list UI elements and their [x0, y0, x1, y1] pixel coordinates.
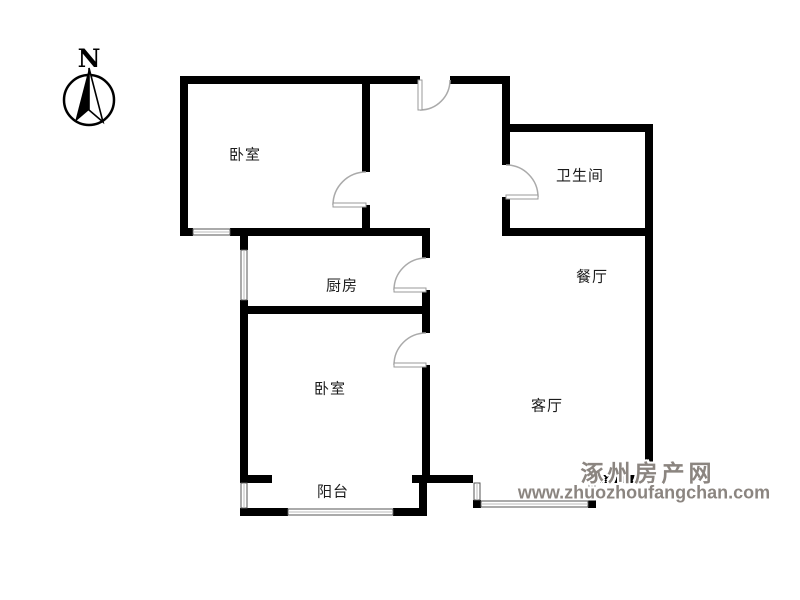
floor-plan-page: N [0, 0, 800, 600]
room-label-bedroom-top: 卧室 [229, 144, 261, 165]
window-balcony-left [241, 483, 247, 508]
door-leaf [506, 195, 538, 199]
door-arc [394, 333, 426, 365]
wall-segment [240, 314, 248, 475]
wall-segment [502, 124, 653, 132]
room-label-bathroom: 卫生间 [556, 165, 604, 186]
wall-segment [240, 475, 272, 483]
wall-segment [180, 228, 193, 236]
window-living-jog-left [474, 483, 480, 500]
door-leaf [394, 288, 426, 292]
door-leaf [394, 363, 426, 367]
wall-segment [422, 228, 430, 258]
wall-segment [412, 475, 473, 483]
wall-segment [180, 76, 188, 236]
wall-segment [240, 306, 430, 314]
wall-segment [230, 228, 430, 236]
door-arc [394, 258, 426, 290]
door-bathroom [506, 165, 538, 199]
wall-segment [502, 228, 653, 236]
wall-segment [362, 76, 370, 172]
room-label-kitchen: 厨房 [326, 275, 358, 296]
window-kitchen-left [241, 250, 247, 300]
watermark-site-url: www.zhuozhoufangchan.com [518, 483, 770, 504]
door-arc [420, 80, 450, 110]
room-label-dining: 餐厅 [576, 266, 608, 287]
room-label-bedroom-bottom: 卧室 [314, 378, 346, 399]
door-leaf [418, 80, 422, 110]
door-kitchen [394, 258, 426, 292]
wall-segment [240, 236, 248, 250]
door-entry [418, 80, 450, 110]
wall-segment [422, 290, 430, 333]
walls-layer [180, 76, 653, 516]
door-bedroom-top [333, 172, 366, 207]
wall-segment [422, 365, 430, 475]
wall-segment [240, 508, 288, 516]
wall-segment [473, 500, 481, 508]
window-bedroom-top [193, 229, 230, 235]
wall-segment [645, 124, 653, 483]
door-arc [506, 165, 538, 197]
wall-segment [180, 76, 420, 84]
wall-segment [450, 76, 507, 84]
wall-segment [502, 76, 510, 165]
room-label-balcony: 阳台 [317, 481, 349, 502]
window-balcony-bottom [288, 509, 393, 515]
wall-segment [393, 508, 427, 516]
door-bedroom-bottom [394, 333, 426, 367]
door-arc [333, 172, 366, 205]
compass: N [64, 44, 114, 125]
floor-plan-drawing: N [0, 0, 800, 600]
room-label-living: 客厅 [531, 395, 563, 416]
door-leaf [333, 203, 366, 207]
windows-layer [193, 229, 595, 515]
